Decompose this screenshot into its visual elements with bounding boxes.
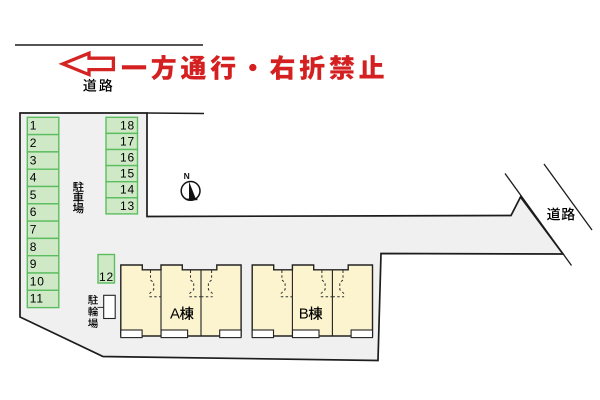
svg-text:6: 6 bbox=[30, 205, 37, 219]
svg-text:8: 8 bbox=[30, 240, 37, 254]
svg-text:12: 12 bbox=[99, 270, 114, 284]
svg-text:N: N bbox=[184, 171, 190, 181]
svg-text:13: 13 bbox=[120, 199, 135, 213]
svg-text:11: 11 bbox=[30, 292, 44, 306]
svg-text:1: 1 bbox=[30, 119, 37, 133]
svg-text:7: 7 bbox=[30, 223, 37, 237]
svg-text:16: 16 bbox=[120, 151, 135, 165]
svg-text:9: 9 bbox=[30, 257, 37, 271]
svg-text:5: 5 bbox=[30, 188, 37, 202]
svg-text:15: 15 bbox=[120, 167, 135, 181]
svg-text:17: 17 bbox=[120, 134, 135, 148]
svg-text:2: 2 bbox=[30, 136, 37, 150]
svg-text:B: B bbox=[299, 306, 309, 323]
svg-text:A: A bbox=[170, 306, 180, 323]
svg-text:3: 3 bbox=[30, 153, 37, 167]
svg-text:4: 4 bbox=[30, 171, 37, 185]
svg-text:18: 18 bbox=[120, 118, 135, 132]
svg-text:14: 14 bbox=[120, 183, 135, 197]
svg-text:10: 10 bbox=[30, 274, 45, 288]
